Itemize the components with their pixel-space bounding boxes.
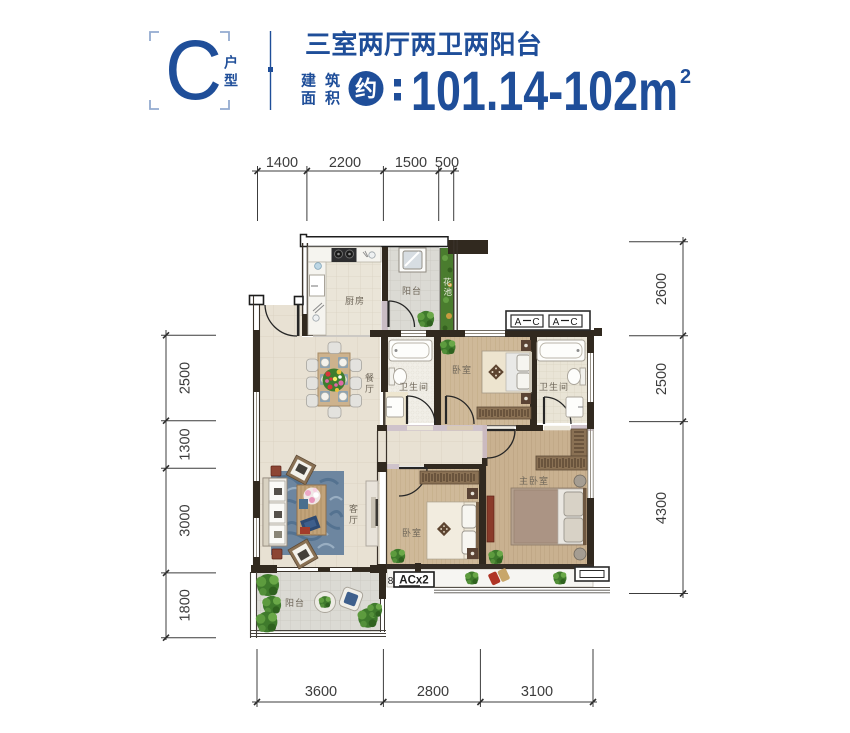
svg-text:2200: 2200	[329, 155, 361, 171]
svg-text:C: C	[532, 317, 539, 328]
svg-text:2: 2	[680, 66, 691, 88]
svg-text:8: 8	[388, 576, 394, 587]
svg-text:A: A	[515, 317, 522, 328]
svg-text:主卧室: 主卧室	[519, 475, 549, 486]
svg-text:4300: 4300	[654, 492, 670, 524]
svg-text:厨房: 厨房	[345, 295, 365, 306]
svg-text:C: C	[165, 23, 222, 117]
svg-text:101.14-102m: 101.14-102m	[411, 60, 678, 122]
svg-text:3000: 3000	[178, 504, 194, 536]
svg-text:ACx2: ACx2	[399, 575, 428, 587]
svg-text:花池: 花池	[443, 277, 453, 297]
svg-text:阳台: 阳台	[402, 285, 422, 296]
svg-text:3100: 3100	[521, 684, 553, 700]
svg-text:卧室: 卧室	[452, 364, 472, 375]
svg-text:1300: 1300	[178, 428, 194, 460]
svg-text:C: C	[570, 317, 577, 328]
svg-text:卧室: 卧室	[402, 527, 422, 538]
svg-text:卫生间: 卫生间	[539, 381, 569, 392]
svg-text:2500: 2500	[654, 363, 670, 395]
svg-text:卫生间: 卫生间	[399, 381, 429, 392]
svg-text:2600: 2600	[654, 273, 670, 305]
svg-text:三室两厅两卫两阳台: 三室两厅两卫两阳台	[305, 30, 542, 60]
svg-text:建筑面积: 建筑面积	[301, 72, 349, 108]
svg-text:1400: 1400	[266, 155, 298, 171]
svg-text:阳台: 阳台	[285, 597, 305, 608]
svg-text:2800: 2800	[417, 684, 449, 700]
svg-text:2500: 2500	[178, 362, 194, 394]
svg-text:约: 约	[355, 77, 377, 102]
svg-text:A: A	[553, 317, 560, 328]
svg-text:1800: 1800	[178, 589, 194, 621]
svg-text:3600: 3600	[305, 684, 337, 700]
svg-text:1500: 1500	[395, 155, 427, 171]
